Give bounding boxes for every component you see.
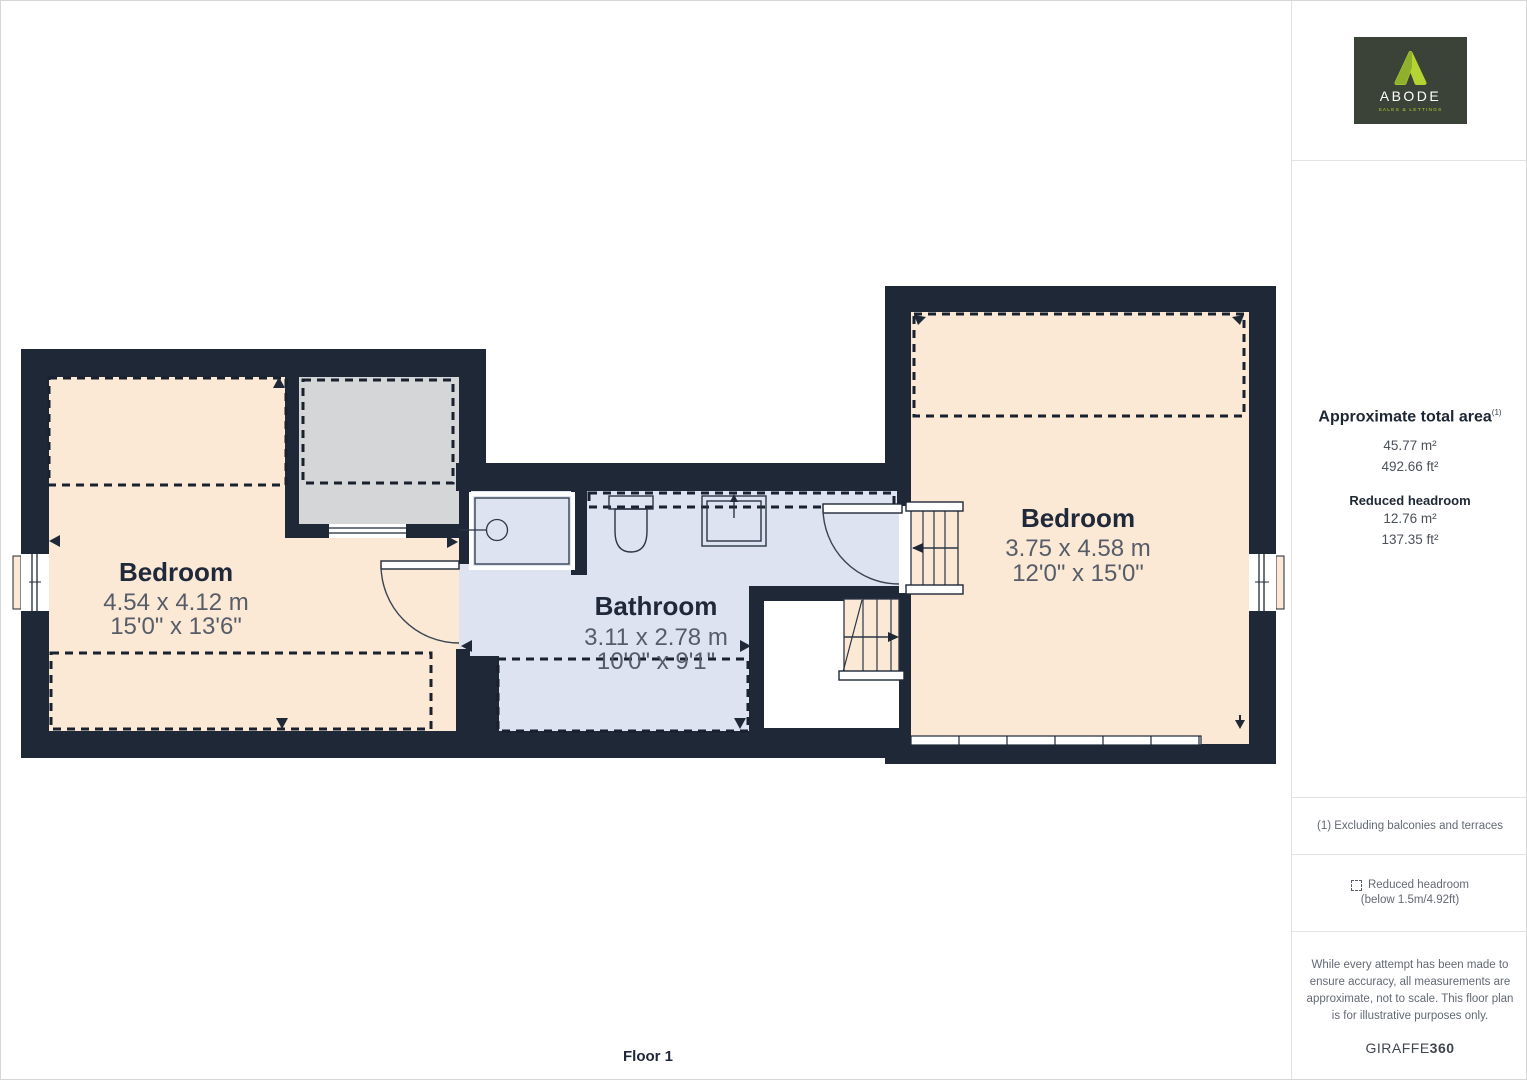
legend-label: Reduced headroom xyxy=(1368,878,1469,893)
legend-section: Reduced headroom (below 1.5m/4.92ft) xyxy=(1292,855,1527,932)
shower-icon xyxy=(459,494,573,568)
legend-detail: (below 1.5m/4.92ft) xyxy=(1361,893,1459,908)
room-dim-imperial-bedroom-left: 15'0" x 13'6" xyxy=(110,613,242,640)
room-dim-metric-bedroom-left: 4.54 x 4.12 m xyxy=(103,589,248,616)
room-dim-metric-bedroom-right: 3.75 x 4.58 m xyxy=(1005,535,1150,562)
room-label-bedroom-left: Bedroom xyxy=(119,557,233,587)
stairs-upper xyxy=(906,502,963,594)
watermark-name: GIRAFFE xyxy=(1365,1040,1429,1056)
reduced-headroom-title: Reduced headroom xyxy=(1349,493,1470,508)
total-area-m2: 45.77 m² xyxy=(1383,435,1436,456)
floorplan-drawing: Bedroom 4.54 x 4.12 m 15'0" x 13'6" Bath… xyxy=(1,1,1291,1080)
logo-tagline-text: SALES & LETTINGS xyxy=(1378,107,1442,113)
area-title-text: Approximate total area xyxy=(1318,409,1491,426)
logo-brand-text: ABODE xyxy=(1379,88,1441,104)
footnote-text: (1) Excluding balconies and terraces xyxy=(1317,819,1503,834)
logo-section: ABODE SALES & LETTINGS xyxy=(1292,1,1527,161)
giraffe360-watermark: GIRAFFE360 xyxy=(1365,1040,1454,1056)
area-summary-section: Approximate total area(1) 45.77 m² 492.6… xyxy=(1292,161,1527,798)
room-dim-imperial-bathroom: 10'0" x 9'1" xyxy=(597,648,715,675)
window-band-bottom xyxy=(911,736,1201,745)
disclaimer-text: While every attempt has been made to ens… xyxy=(1304,957,1516,1025)
reduced-area-m2: 12.76 m² xyxy=(1383,508,1436,529)
room-dim-metric-bathroom: 3.11 x 2.78 m xyxy=(584,624,728,651)
room-label-bathroom: Bathroom xyxy=(595,591,718,621)
abode-logo: ABODE SALES & LETTINGS xyxy=(1354,37,1467,124)
disclaimer-section: While every attempt has been made to ens… xyxy=(1292,932,1527,1080)
room-label-bedroom-right: Bedroom xyxy=(1021,503,1135,533)
reduced-headroom-legend-icon xyxy=(1351,880,1362,891)
floor-label: Floor 1 xyxy=(623,1048,673,1065)
reduced-area-ft2: 137.35 ft² xyxy=(1381,529,1438,550)
room-dim-imperial-bedroom-right: 12'0" x 15'0" xyxy=(1012,560,1144,587)
footnote-section: (1) Excluding balconies and terraces xyxy=(1292,798,1527,855)
reduced-headroom-room-floor xyxy=(299,377,459,524)
watermark-suffix: 360 xyxy=(1430,1040,1455,1056)
total-area-ft2: 492.66 ft² xyxy=(1381,456,1438,477)
reduced-room-opening xyxy=(329,524,406,538)
info-sidebar: ABODE SALES & LETTINGS Approximate total… xyxy=(1291,1,1527,1080)
bedroom-door-gap xyxy=(459,564,469,649)
stairs-lower xyxy=(839,599,904,680)
window-right xyxy=(1249,554,1284,611)
window-left xyxy=(13,554,49,611)
area-footnote-ref: (1) xyxy=(1492,408,1502,417)
bathroom-door-threshold xyxy=(899,506,911,593)
floorplan-page: Bedroom 4.54 x 4.12 m 15'0" x 13'6" Bath… xyxy=(0,0,1527,1080)
area-title: Approximate total area(1) xyxy=(1318,408,1501,426)
